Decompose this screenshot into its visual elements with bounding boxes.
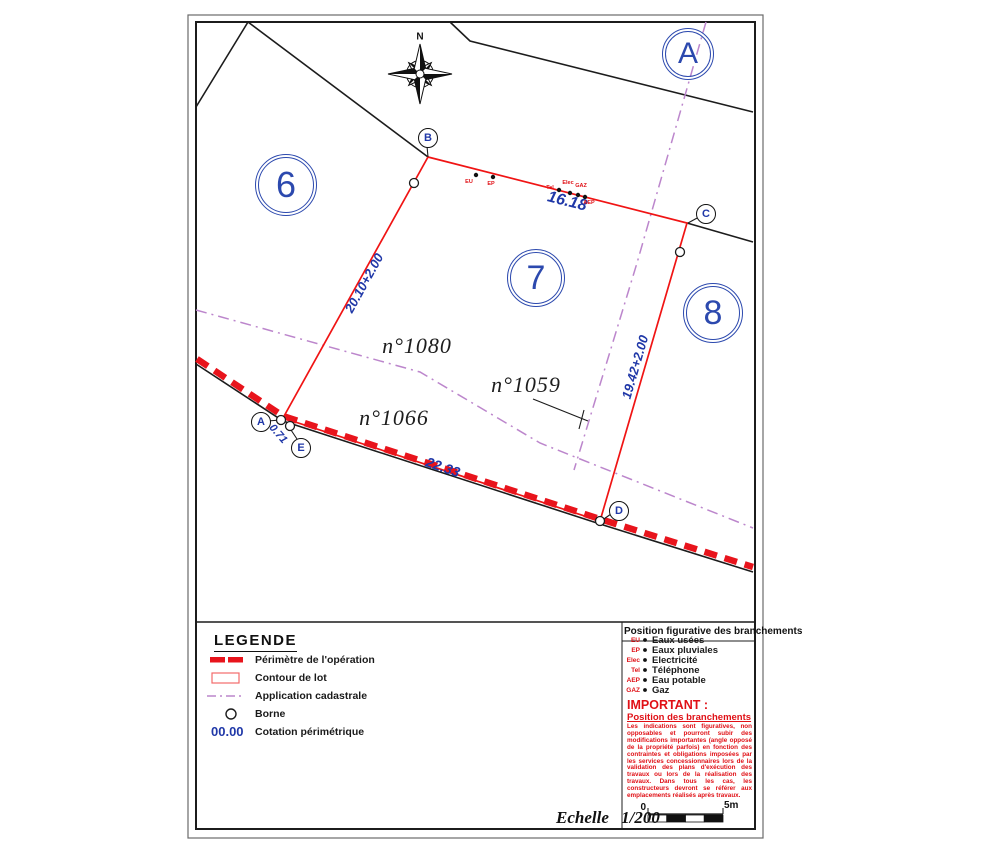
- legend-symbols: [207, 657, 245, 719]
- branchement-abbr-elec: Elec: [626, 657, 640, 664]
- mark-tel: Tel: [546, 185, 554, 191]
- branchement-abbr-gaz: GAZ: [626, 687, 640, 694]
- branchement-legend-dots: [643, 638, 647, 692]
- lot-contour: [283, 157, 687, 521]
- branchement-abbr-ep: EP: [626, 647, 640, 654]
- branchement-label-gaz: Gaz: [652, 685, 669, 696]
- branchement-abbr-eu: EU: [626, 637, 640, 644]
- plan-drawing: [0, 0, 1000, 857]
- scale-zero-label: 0: [634, 802, 646, 813]
- important-title: IMPORTANT :: [627, 698, 708, 712]
- legend-item-cotation: Cotation périmétrique: [255, 726, 364, 738]
- legend-title: LEGENDE: [214, 632, 297, 652]
- point-label-A: A: [251, 412, 271, 432]
- important-subtitle: Position des branchements: [627, 712, 751, 723]
- label-leader-lines: [268, 146, 699, 521]
- mark-ep: EP: [487, 181, 494, 187]
- lot-7-label: 7: [510, 252, 562, 304]
- zone-label-A: A: [665, 31, 711, 77]
- mark-aep: AEP: [583, 200, 594, 206]
- mark-eu: EU: [465, 179, 473, 185]
- parcel-n1066: n°1066: [359, 405, 429, 431]
- legend-cotation-symbol: 00.00: [211, 724, 244, 739]
- point-label-E: E: [291, 438, 311, 458]
- legend-item-contour: Contour de lot: [255, 672, 327, 684]
- point-label-C: C: [696, 204, 716, 224]
- cadastral-application-lines: [196, 22, 753, 528]
- lot-8-label: 8: [686, 286, 740, 340]
- lot-6-label: 6: [258, 157, 314, 213]
- compass-rose-icon: [388, 44, 452, 104]
- branchement-abbr-aep: AEP: [626, 677, 640, 684]
- legend-item-cadastrale: Application cadastrale: [255, 690, 367, 702]
- point-label-D: D: [609, 501, 629, 521]
- mark-gaz: GAZ: [575, 183, 587, 189]
- legend-item-perimetre: Périmètre de l'opération: [255, 654, 375, 666]
- point-label-B: B: [418, 128, 438, 148]
- parcel-n1080: n°1080: [382, 333, 452, 359]
- existing-boundary-lines: [196, 22, 753, 572]
- scale-max-label: 5m: [724, 800, 738, 811]
- branchement-abbr-tel: Tel: [626, 667, 640, 674]
- important-body: Les indications sont figuratives, non op…: [627, 724, 752, 800]
- mark-elec: Elec: [562, 180, 573, 186]
- borne-markers: [277, 179, 685, 526]
- north-label: N: [416, 32, 423, 43]
- legend-item-borne: Borne: [255, 708, 285, 720]
- survey-plan-page: N A 6 7 8 B C D E A n°1080 n°1059 n°1066…: [0, 0, 1000, 857]
- operation-perimeter: [197, 359, 753, 567]
- parcel-n1059: n°1059: [491, 372, 561, 398]
